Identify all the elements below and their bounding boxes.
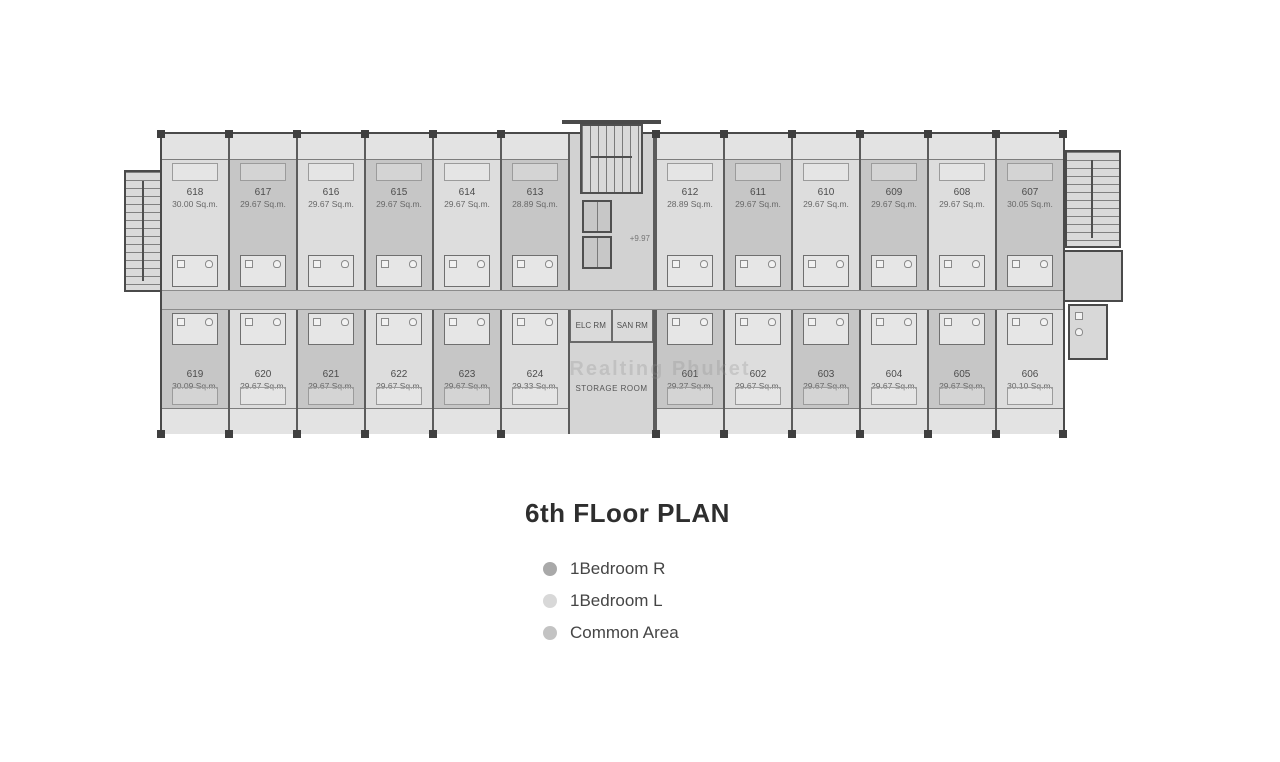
unit-room: 60630.10 Sq.m. (997, 310, 1063, 408)
sink-icon (944, 318, 952, 326)
unit-number: 616 (298, 186, 364, 199)
unit-balcony (725, 408, 791, 434)
unit-balcony (861, 134, 927, 160)
building-slab: 61830.00 Sq.m.61729.67 Sq.m.61629.67 Sq.… (160, 132, 1065, 432)
unit-label: 61629.67 Sq.m. (298, 186, 364, 210)
unit-area: 29.67 Sq.m. (230, 199, 296, 210)
elc-room: ELC RM (570, 310, 612, 342)
facade-column (992, 130, 1000, 138)
unit-balcony (298, 134, 364, 160)
unit-label: 60730.05 Sq.m. (997, 186, 1063, 210)
unit-area: 28.89 Sq.m. (502, 199, 568, 210)
unit-area: 28.89 Sq.m. (657, 199, 723, 210)
unit-balcony (657, 408, 723, 434)
sink-icon (245, 318, 253, 326)
toilet-icon (545, 318, 553, 326)
toilet-icon (972, 318, 980, 326)
unit-label: 60829.67 Sq.m. (929, 186, 995, 210)
bed-icon (939, 387, 985, 405)
facade-column (361, 430, 369, 438)
unit-label: 61729.67 Sq.m. (230, 186, 296, 210)
sink-icon (177, 260, 185, 268)
toilet-icon (341, 318, 349, 326)
storage-room: STORAGE ROOM (570, 342, 653, 434)
bathroom (172, 313, 218, 345)
unit-label: 61529.67 Sq.m. (366, 186, 432, 210)
bathroom (871, 313, 917, 345)
toilet-icon (205, 318, 213, 326)
unit-balcony (657, 134, 723, 160)
floor-plan-page: 61830.00 Sq.m.61729.67 Sq.m.61629.67 Sq.… (0, 0, 1280, 762)
unit-balcony (997, 134, 1063, 160)
unit-number: 614 (434, 186, 500, 199)
unit-balcony (502, 408, 568, 434)
core-stairs (580, 124, 643, 194)
unit-number: 610 (793, 186, 859, 199)
toilet-icon (836, 260, 844, 268)
unit-number: 608 (929, 186, 995, 199)
unit-619: 61930.09 Sq.m. (162, 310, 228, 434)
facade-column (157, 430, 165, 438)
unit-balcony (230, 134, 296, 160)
unit-room: 61729.67 Sq.m. (230, 160, 296, 290)
bed-icon (444, 163, 490, 181)
unit-number: 621 (298, 368, 364, 381)
toilet-icon (768, 260, 776, 268)
unit-621: 62129.67 Sq.m. (296, 310, 364, 434)
unit-label: 61029.67 Sq.m. (793, 186, 859, 210)
bathroom (376, 313, 422, 345)
toilet-icon (341, 260, 349, 268)
bathroom (939, 255, 985, 287)
stair-rail (1091, 160, 1093, 239)
right-stair-wing (1065, 150, 1121, 248)
sink-icon (449, 260, 457, 268)
sink-icon (1012, 318, 1020, 326)
unit-618: 61830.00 Sq.m. (162, 134, 228, 290)
sink-icon (449, 318, 457, 326)
facade-column (788, 130, 796, 138)
unit-number: 618 (162, 186, 228, 199)
unit-room: 60730.05 Sq.m. (997, 160, 1063, 290)
facade-column (924, 430, 932, 438)
toilet-icon (409, 318, 417, 326)
bathroom (308, 255, 354, 287)
toilet-icon (273, 260, 281, 268)
unit-label: 61228.89 Sq.m. (657, 186, 723, 210)
sink-icon (517, 260, 525, 268)
unit-area: 29.67 Sq.m. (366, 199, 432, 210)
sink-icon (808, 260, 816, 268)
facade-column (225, 130, 233, 138)
unit-balcony (162, 134, 228, 160)
unit-balcony (793, 134, 859, 160)
unit-606: 60630.10 Sq.m. (995, 310, 1063, 434)
unit-room: 62329.67 Sq.m. (434, 310, 500, 408)
sink-icon (672, 318, 680, 326)
sink-icon (672, 260, 680, 268)
bed-icon (667, 387, 713, 405)
sink-icon (313, 260, 321, 268)
stair-rail (142, 181, 144, 280)
bathroom (240, 255, 286, 287)
bathroom (667, 313, 713, 345)
bed-icon (803, 163, 849, 181)
facade-column (157, 130, 165, 138)
facade-column (1059, 430, 1067, 438)
facade-column (293, 130, 301, 138)
unit-room: 61328.89 Sq.m. (502, 160, 568, 290)
unit-622: 62229.67 Sq.m. (364, 310, 432, 434)
page-title: 6th FLoor PLAN (525, 498, 730, 529)
bed-icon (240, 163, 286, 181)
legend: 1Bedroom R 1Bedroom L Common Area (543, 553, 730, 649)
unit-610: 61029.67 Sq.m. (791, 134, 859, 290)
stair-landing (591, 156, 632, 158)
bathroom (308, 313, 354, 345)
unit-area: 29.67 Sq.m. (298, 199, 364, 210)
unit-balcony (793, 408, 859, 434)
facade-column (429, 130, 437, 138)
toilet-icon (273, 318, 281, 326)
bed-icon (871, 387, 917, 405)
bathroom (444, 313, 490, 345)
unit-balcony (929, 134, 995, 160)
unit-room: 61228.89 Sq.m. (657, 160, 723, 290)
sink-icon (245, 260, 253, 268)
sink-icon (808, 318, 816, 326)
toilet-icon (1040, 318, 1048, 326)
unit-label: 61129.67 Sq.m. (725, 186, 791, 210)
bed-icon (803, 387, 849, 405)
bed-icon (172, 163, 218, 181)
right-corridor-stub (1065, 250, 1123, 302)
unit-area: 29.67 Sq.m. (929, 199, 995, 210)
bathroom (512, 255, 558, 287)
legend-dot-1bedroom-r-icon (543, 562, 557, 576)
unit-number: 609 (861, 186, 927, 199)
unit-room: 61629.67 Sq.m. (298, 160, 364, 290)
bathroom (1007, 313, 1053, 345)
sink-icon (740, 260, 748, 268)
bed-icon (871, 163, 917, 181)
facade-column (652, 130, 660, 138)
legend-label: 1Bedroom L (570, 591, 663, 611)
sink-icon (944, 260, 952, 268)
bathroom (376, 255, 422, 287)
facade-column (1059, 130, 1067, 138)
unit-616: 61629.67 Sq.m. (296, 134, 364, 290)
legend-dot-1bedroom-l-icon (543, 594, 557, 608)
bed-icon (308, 387, 354, 405)
caption-block: 6th FLoor PLAN 1Bedroom R 1Bedroom L Com… (525, 498, 730, 649)
sink-icon (876, 260, 884, 268)
legend-item: Common Area (543, 617, 730, 649)
toilet-icon (904, 260, 912, 268)
bathroom (172, 255, 218, 287)
unit-balcony (725, 134, 791, 160)
unit-room: 61830.00 Sq.m. (162, 160, 228, 290)
unit-number: 622 (366, 368, 432, 381)
facade-column (720, 130, 728, 138)
right-restroom (1068, 304, 1108, 360)
unit-612: 61228.89 Sq.m. (655, 134, 723, 290)
unit-number: 612 (657, 186, 723, 199)
bathroom (803, 313, 849, 345)
unit-room: 61529.67 Sq.m. (366, 160, 432, 290)
unit-balcony (230, 408, 296, 434)
facade-column (497, 430, 505, 438)
bed-icon (939, 163, 985, 181)
bathroom (871, 255, 917, 287)
bed-icon (376, 163, 422, 181)
unit-balcony (997, 408, 1063, 434)
bathroom (667, 255, 713, 287)
bed-icon (444, 387, 490, 405)
bathroom (444, 255, 490, 287)
unit-number: 613 (502, 186, 568, 199)
unit-617: 61729.67 Sq.m. (228, 134, 296, 290)
facade-column (497, 130, 505, 138)
service-rooms: ELC RM SAN RM (570, 310, 653, 342)
unit-number: 604 (861, 368, 927, 381)
unit-607: 60730.05 Sq.m. (995, 134, 1063, 290)
unit-room: 61429.67 Sq.m. (434, 160, 500, 290)
bed-icon (376, 387, 422, 405)
sink-icon (177, 318, 185, 326)
legend-item: 1Bedroom L (543, 585, 730, 617)
facade-column (361, 130, 369, 138)
bathroom (512, 313, 558, 345)
unit-balcony (929, 408, 995, 434)
bed-icon (1007, 387, 1053, 405)
facade-column (992, 430, 1000, 438)
unit-604: 60429.67 Sq.m. (859, 310, 927, 434)
elevator-2 (582, 236, 612, 269)
bed-icon (512, 163, 558, 181)
bed-icon (512, 387, 558, 405)
unit-balcony (162, 408, 228, 434)
unit-area: 29.67 Sq.m. (793, 199, 859, 210)
toilet-icon (1075, 312, 1083, 320)
toilet-icon (972, 260, 980, 268)
unit-number: 617 (230, 186, 296, 199)
unit-number: 615 (366, 186, 432, 199)
legend-label: Common Area (570, 623, 679, 643)
top-unit-row: 61830.00 Sq.m.61729.67 Sq.m.61629.67 Sq.… (162, 134, 1063, 290)
toilet-icon (477, 318, 485, 326)
central-core: +9.97 (568, 134, 655, 290)
unit-number: 619 (162, 368, 228, 381)
unit-balcony (434, 408, 500, 434)
unit-area: 30.00 Sq.m. (162, 199, 228, 210)
unit-623: 62329.67 Sq.m. (432, 310, 500, 434)
toilet-icon (409, 260, 417, 268)
bed-icon (735, 387, 781, 405)
unit-room: 60829.67 Sq.m. (929, 160, 995, 290)
facade-column (788, 430, 796, 438)
toilet-icon (545, 260, 553, 268)
bed-icon (172, 387, 218, 405)
toilet-icon (700, 260, 708, 268)
corridor (162, 290, 1063, 310)
watermark: Realting Phuket (510, 358, 810, 381)
unit-608: 60829.67 Sq.m. (927, 134, 995, 290)
unit-label: 61830.00 Sq.m. (162, 186, 228, 210)
unit-620: 62029.67 Sq.m. (228, 310, 296, 434)
unit-number: 620 (230, 368, 296, 381)
unit-609: 60929.67 Sq.m. (859, 134, 927, 290)
unit-area: 29.67 Sq.m. (434, 199, 500, 210)
unit-614: 61429.67 Sq.m. (432, 134, 500, 290)
unit-room: 60929.67 Sq.m. (861, 160, 927, 290)
toilet-icon (700, 318, 708, 326)
unit-number: 605 (929, 368, 995, 381)
toilet-icon (205, 260, 213, 268)
unit-area: 29.67 Sq.m. (861, 199, 927, 210)
unit-number: 606 (997, 368, 1063, 381)
facade-column (924, 130, 932, 138)
sink-icon (381, 318, 389, 326)
unit-label: 61429.67 Sq.m. (434, 186, 500, 210)
unit-613: 61328.89 Sq.m. (500, 134, 568, 290)
unit-room: 62229.67 Sq.m. (366, 310, 432, 408)
toilet-icon (1040, 260, 1048, 268)
toilet-icon (904, 318, 912, 326)
facade-column (856, 430, 864, 438)
unit-balcony (366, 134, 432, 160)
unit-room: 62129.67 Sq.m. (298, 310, 364, 408)
elevator-1 (582, 200, 612, 233)
unit-room: 60529.67 Sq.m. (929, 310, 995, 408)
toilet-icon (477, 260, 485, 268)
unit-room: 61930.09 Sq.m. (162, 310, 228, 408)
bathroom (735, 313, 781, 345)
unit-number: 607 (997, 186, 1063, 199)
unit-number: 623 (434, 368, 500, 381)
unit-area: 29.67 Sq.m. (725, 199, 791, 210)
unit-615: 61529.67 Sq.m. (364, 134, 432, 290)
toilet-icon (836, 318, 844, 326)
left-stair-wing (124, 170, 162, 292)
unit-balcony (434, 134, 500, 160)
unit-balcony (502, 134, 568, 160)
unit-room: 61129.67 Sq.m. (725, 160, 791, 290)
legend-dot-common-area-icon (543, 626, 557, 640)
bathroom (735, 255, 781, 287)
sink-icon (740, 318, 748, 326)
unit-area: 30.05 Sq.m. (997, 199, 1063, 210)
unit-label: 61328.89 Sq.m. (502, 186, 568, 210)
unit-balcony (298, 408, 364, 434)
legend-label: 1Bedroom R (570, 559, 665, 579)
unit-room: 62029.67 Sq.m. (230, 310, 296, 408)
unit-balcony (861, 408, 927, 434)
bathroom (240, 313, 286, 345)
unit-room: 61029.67 Sq.m. (793, 160, 859, 290)
facade-column (652, 430, 660, 438)
unit-label: 60929.67 Sq.m. (861, 186, 927, 210)
bathroom (1007, 255, 1053, 287)
facade-column (225, 430, 233, 438)
sink-icon (517, 318, 525, 326)
bathroom (939, 313, 985, 345)
unit-number: 611 (725, 186, 791, 199)
unit-605: 60529.67 Sq.m. (927, 310, 995, 434)
bed-icon (667, 163, 713, 181)
san-room: SAN RM (612, 310, 654, 342)
sink-icon (1012, 260, 1020, 268)
facade-column (429, 430, 437, 438)
floor-plan: 61830.00 Sq.m.61729.67 Sq.m.61629.67 Sq.… (0, 0, 1280, 470)
unit-balcony (366, 408, 432, 434)
facade-column (720, 430, 728, 438)
legend-item: 1Bedroom R (543, 553, 730, 585)
sink-icon (381, 260, 389, 268)
bed-icon (735, 163, 781, 181)
level-marker: +9.97 (630, 234, 650, 243)
bed-icon (1007, 163, 1053, 181)
sink-icon (876, 318, 884, 326)
bed-icon (240, 387, 286, 405)
unit-611: 61129.67 Sq.m. (723, 134, 791, 290)
toilet-icon (1075, 328, 1083, 336)
bed-icon (308, 163, 354, 181)
bathroom (803, 255, 849, 287)
facade-column (856, 130, 864, 138)
toilet-icon (768, 318, 776, 326)
unit-room: 60429.67 Sq.m. (861, 310, 927, 408)
sink-icon (313, 318, 321, 326)
facade-column (293, 430, 301, 438)
